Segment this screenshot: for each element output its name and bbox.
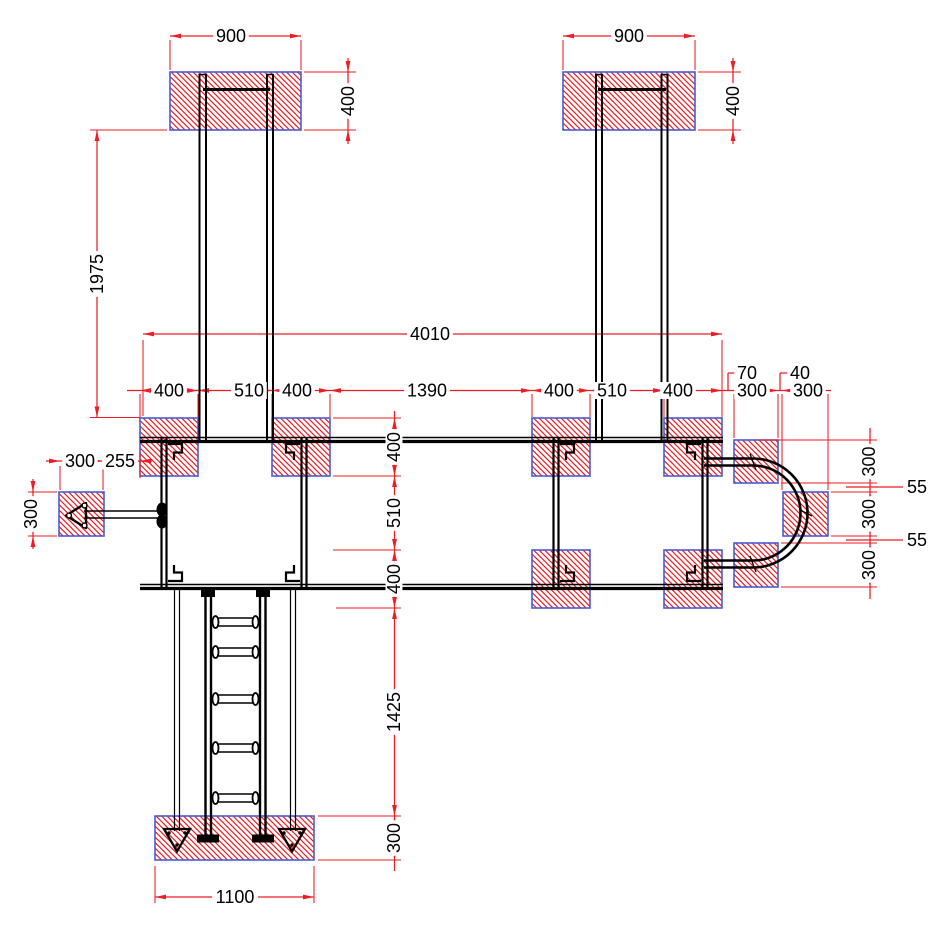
ladder-foot <box>197 835 219 843</box>
dimension-label: 400 <box>279 381 315 401</box>
dimension-arrow <box>31 481 36 492</box>
dimension-label: 300 <box>21 496 41 532</box>
dimension-arrow <box>392 608 397 619</box>
dimension-arrow <box>521 388 532 393</box>
ladder-rung <box>213 693 259 705</box>
dimension-arrow <box>711 388 722 393</box>
dimension-arrow <box>392 418 397 429</box>
svg-text:300: 300 <box>859 446 879 476</box>
svg-text:55: 55 <box>907 477 927 497</box>
steering-footing <box>59 492 104 536</box>
svg-text:55: 55 <box>907 530 927 550</box>
dimension-label: 300 <box>734 381 770 401</box>
dimension-arrow <box>684 34 695 39</box>
post-clamp <box>157 503 168 517</box>
dimension-label: 510 <box>594 381 630 401</box>
dimension-arrow <box>346 130 351 141</box>
dimension-arrow <box>155 895 166 900</box>
platform-left-footing-nw <box>140 418 198 476</box>
ladder-top-connector <box>201 589 215 597</box>
dimension-label: 70 <box>734 363 759 383</box>
svg-text:70: 70 <box>737 363 757 383</box>
svg-text:400: 400 <box>282 381 312 401</box>
svg-text:300: 300 <box>737 381 767 401</box>
dimension-label: 55 <box>904 530 929 550</box>
dimension-arrow <box>563 34 574 39</box>
platform-right-footing-se <box>664 550 722 608</box>
dimension-arrow <box>711 332 722 337</box>
svg-text:400: 400 <box>663 381 693 401</box>
dimension-label: 900 <box>213 26 249 46</box>
platform-right-footing-nw <box>532 418 590 476</box>
dimension-arrow <box>31 536 36 547</box>
svg-text:1425: 1425 <box>384 692 404 732</box>
dimension-arrow <box>143 332 154 337</box>
dimension-arrow <box>187 388 198 393</box>
svg-text:300: 300 <box>859 499 879 529</box>
ladder-rung <box>213 742 259 754</box>
dimension-arrow <box>319 388 330 393</box>
ladder-rung <box>213 616 259 628</box>
svg-text:300: 300 <box>65 451 95 471</box>
dimension-arrow <box>731 130 736 141</box>
dimension-arrow <box>346 61 351 72</box>
dimension-label: 4010 <box>407 324 453 344</box>
dimension-arrow <box>95 130 100 141</box>
svg-text:1390: 1390 <box>407 381 447 401</box>
dimension-arrow <box>579 388 590 393</box>
dimension-label: 400 <box>541 381 577 401</box>
dimension-label: 1100 <box>212 887 258 907</box>
dimension-arrow <box>392 539 397 550</box>
svg-text:300: 300 <box>21 499 41 529</box>
dimension-arrow <box>330 388 341 393</box>
dimension-label: 300 <box>859 496 879 532</box>
dimension-arrow <box>392 550 397 561</box>
post-clamp <box>157 515 168 529</box>
swing-right-footing <box>563 72 695 130</box>
svg-text:4010: 4010 <box>410 324 450 344</box>
svg-text:300: 300 <box>793 381 823 401</box>
dimension-arrow <box>303 895 314 900</box>
dimension-label: 300 <box>859 444 879 480</box>
dimension-arrow <box>170 34 181 39</box>
corner-bracket <box>168 565 182 581</box>
dimension-arrow <box>140 388 151 393</box>
platform-right-footing-sw <box>532 550 590 608</box>
dimension-arrow <box>392 805 397 816</box>
top-rail <box>140 438 723 442</box>
svg-text:255: 255 <box>105 451 135 471</box>
svg-text:300: 300 <box>384 823 404 853</box>
corner-bracket <box>286 565 300 581</box>
dimension-arrow <box>731 61 736 72</box>
svg-text:400: 400 <box>544 381 574 401</box>
ladder <box>164 589 305 852</box>
dimension-label: 900 <box>611 26 647 46</box>
ladder-foot <box>252 835 274 843</box>
dimension-label: 400 <box>338 83 358 119</box>
ladder-top-connector <box>256 589 270 597</box>
svg-text:400: 400 <box>338 86 358 116</box>
dimension-label: 40 <box>787 363 812 383</box>
dimension-label: 255 <box>102 451 138 471</box>
svg-text:40: 40 <box>790 363 810 383</box>
svg-text:300: 300 <box>859 550 879 580</box>
dimension-arrow <box>95 407 100 418</box>
svg-text:400: 400 <box>384 564 404 594</box>
svg-text:510: 510 <box>234 381 264 401</box>
dimension-label: 400 <box>151 381 187 401</box>
ladder-rung <box>213 646 259 658</box>
dimension-arrow <box>392 465 397 476</box>
svg-text:1100: 1100 <box>216 887 255 907</box>
dimension-label: 1390 <box>404 381 450 401</box>
svg-text:400: 400 <box>384 432 404 462</box>
platform-right-footing-ne <box>664 418 722 476</box>
bottom-rail <box>140 585 723 589</box>
dimension-arrow <box>392 476 397 487</box>
svg-text:510: 510 <box>597 381 627 401</box>
drawing-canvas: 9009004004001975401040051040013904005104… <box>0 0 936 936</box>
dimension-label: 400 <box>384 429 404 465</box>
svg-text:900: 900 <box>216 26 246 46</box>
dimension-label: 1975 <box>87 251 107 297</box>
dimension-label: 1425 <box>384 689 404 735</box>
foundation-plan-svg: 9009004004001975401040051040013904005104… <box>0 0 936 936</box>
svg-text:400: 400 <box>723 86 743 116</box>
ladder-rungs <box>213 616 259 804</box>
dimension-label: 300 <box>62 451 98 471</box>
dimension-label: 510 <box>384 495 404 531</box>
dimension-label: 300 <box>790 381 826 401</box>
dimension-label: 400 <box>723 83 743 119</box>
svg-text:900: 900 <box>614 26 644 46</box>
svg-text:400: 400 <box>154 381 184 401</box>
dimension-arrow <box>392 597 397 608</box>
ladder-rung <box>213 792 259 804</box>
dimension-label: 510 <box>231 381 267 401</box>
dimension-arrow <box>49 459 60 464</box>
swing-left-footing <box>170 72 301 130</box>
dimension-label: 300 <box>859 547 879 583</box>
dimension-label: 55 <box>904 477 929 497</box>
dimension-arrow <box>290 34 301 39</box>
dimension-label: 400 <box>384 561 404 597</box>
dimension-label: 400 <box>660 381 696 401</box>
svg-text:1975: 1975 <box>87 254 107 294</box>
dimension-label: 300 <box>384 820 404 856</box>
svg-text:510: 510 <box>384 498 404 528</box>
